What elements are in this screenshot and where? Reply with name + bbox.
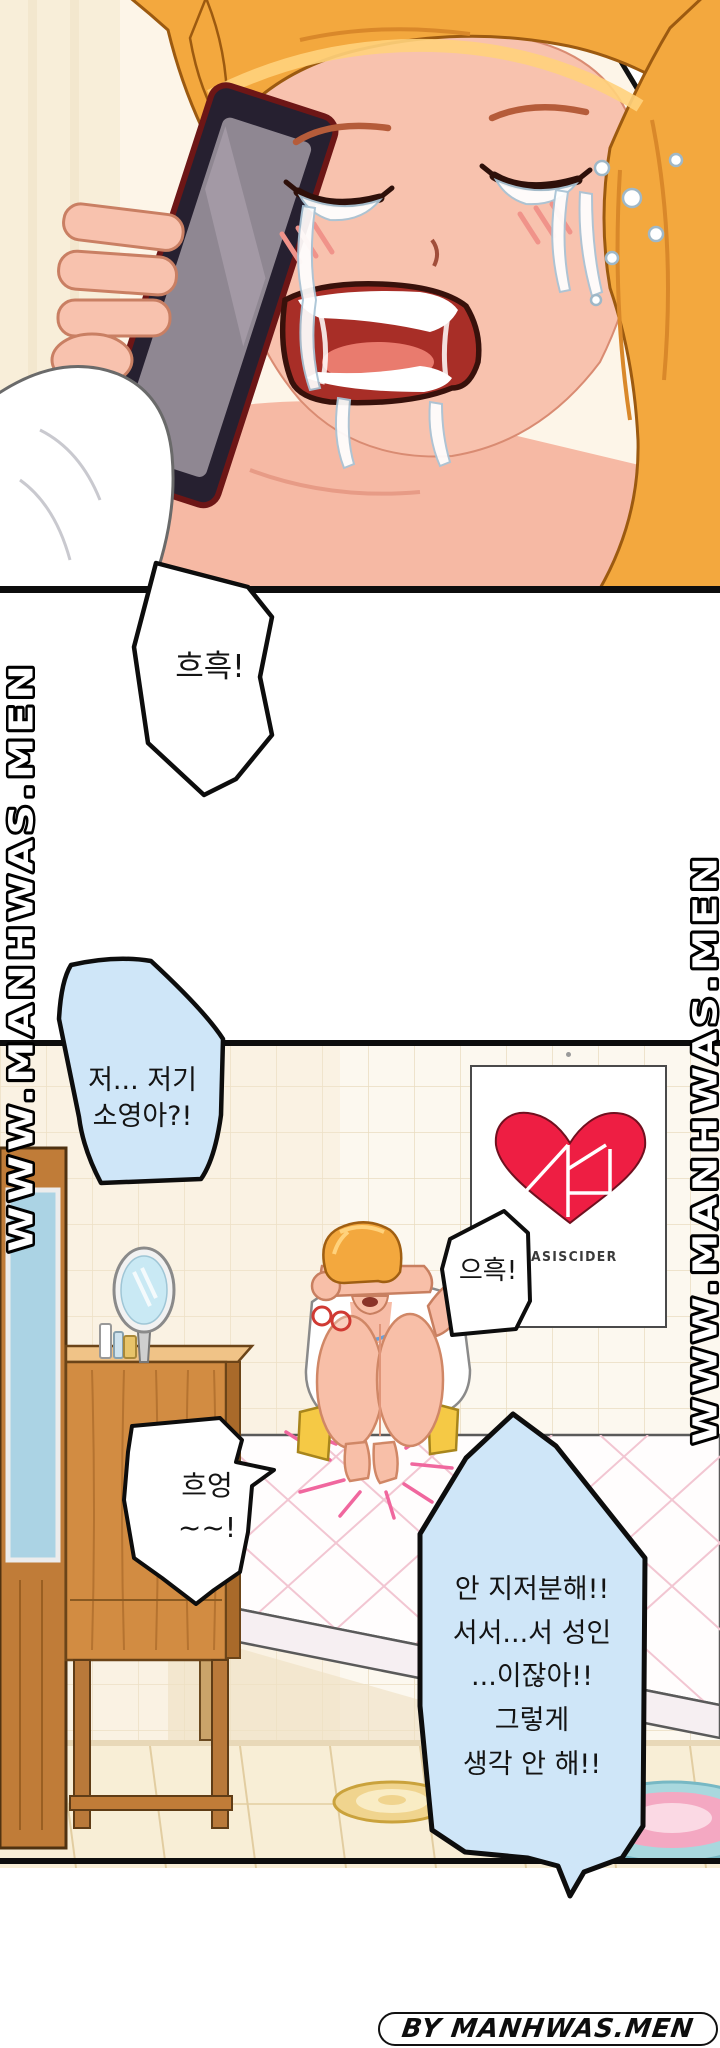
- right-foot: [374, 1442, 398, 1483]
- footer-credit-text: BY MANHWAS.MEN: [400, 2014, 696, 2044]
- bubble-sob-text: 흐흑!: [130, 650, 290, 686]
- mirror-stand: [138, 1332, 150, 1362]
- bubble-deny-line2: 서서...서 성인: [412, 1612, 652, 1656]
- left-foot: [345, 1442, 370, 1481]
- poster-nail: [566, 1052, 571, 1057]
- panel-closeup-crying: [0, 0, 720, 590]
- bubble-sob: 흐흑!: [130, 555, 290, 800]
- stretcher-bar: [70, 1796, 232, 1810]
- bubble-call-out: 저... 저기 소영아?!: [55, 953, 230, 1189]
- bubble-deny-text: 안 지저분해!! 서서...서 성인 ...이잖아!! 그렇게 생각 안 해!!: [412, 1568, 652, 1787]
- bubble-call-line2: 소영아?!: [55, 1101, 230, 1132]
- left-knee: [317, 1316, 383, 1448]
- cabinet-glass: [8, 1190, 58, 1560]
- footer-credit-badge: BY MANHWAS.MEN: [378, 2012, 718, 2046]
- crying-mouth: [362, 1297, 378, 1307]
- bubble-call-line1: 저... 저기: [55, 1065, 230, 1096]
- bubble-sob-small-text: 으흑!: [438, 1257, 538, 1287]
- bubble-wail: 흐엉 ~~!: [118, 1412, 296, 1610]
- vanity-top: [66, 1346, 252, 1362]
- bubble-sob-small: 으흑!: [438, 1205, 538, 1347]
- bubble-deny-line5: 생각 안 해!!: [412, 1743, 652, 1787]
- bubble-deny-line3: ...이잖아!!: [412, 1655, 652, 1699]
- bubble-deny-line1: 안 지저분해!!: [412, 1568, 652, 1612]
- bubble-wail-line2: ~~!: [118, 1512, 296, 1544]
- manhwa-page: OASISCIDER 흐흑! 저... 저기 소영아?! 으흑! 흐엉 ~~! …: [0, 0, 720, 2048]
- panel1-border: [0, 586, 720, 593]
- bubble-deny-line4: 그렇게: [412, 1699, 652, 1743]
- bubble-wail-line1: 흐엉: [118, 1470, 296, 1502]
- bubble-deny: 안 지저분해!! 서서...서 성인 ...이잖아!! 그렇게 생각 안 해!!: [408, 1406, 656, 1904]
